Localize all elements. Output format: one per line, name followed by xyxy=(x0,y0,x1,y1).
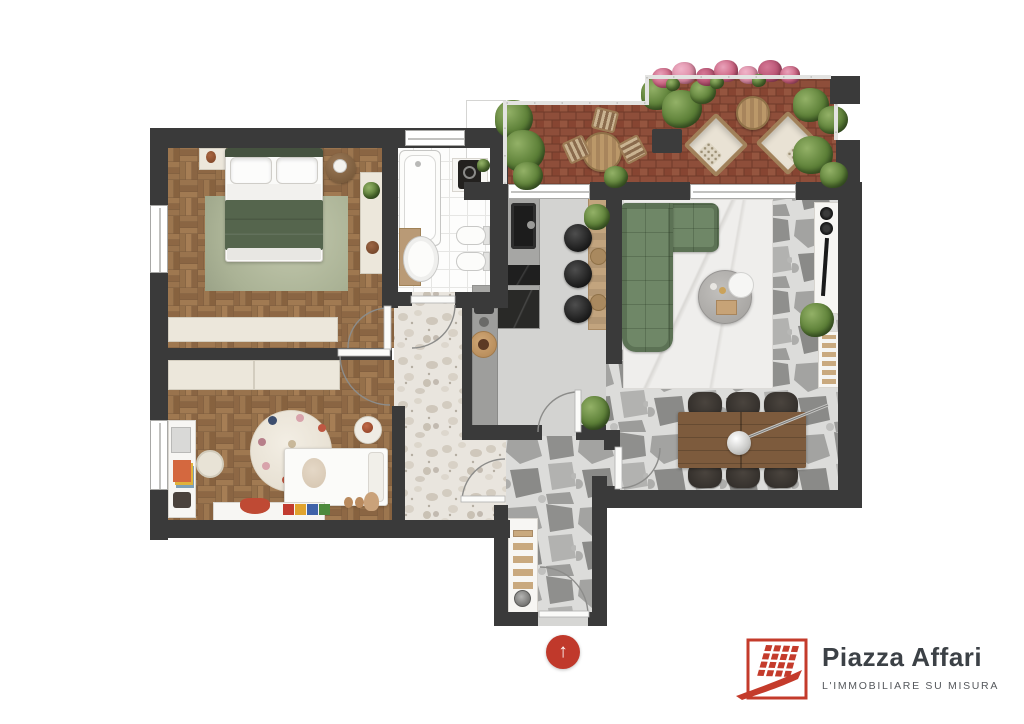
rug-dot xyxy=(296,414,304,422)
bar-stool xyxy=(564,224,592,252)
wall-bedroom-bath xyxy=(382,128,398,308)
bathtub-drain xyxy=(415,161,421,167)
logo-tagline: L'IMMOBILIARE SU MISURA xyxy=(822,680,999,692)
bed-headboard xyxy=(225,148,323,157)
floorplan-canvas: ↑ Piazza Affari L'IMMOBILIARE SU MISURA xyxy=(0,0,1024,724)
dresser-master xyxy=(168,317,338,342)
building-grid-icon xyxy=(736,636,812,708)
rocking-toy xyxy=(240,498,270,514)
wall-terrace-a xyxy=(464,182,508,200)
wall-terrace-b xyxy=(590,182,690,200)
wall-bottom-left xyxy=(150,520,510,538)
entry-threshold xyxy=(538,612,588,626)
toy-bunny xyxy=(364,492,379,511)
rug-dot xyxy=(288,440,296,448)
bath-door-threshold xyxy=(412,292,455,305)
logo-text: Piazza Affari xyxy=(822,642,999,673)
potted-plant xyxy=(363,182,380,199)
kitchen-living-passage-floor xyxy=(606,362,624,432)
bench-slats xyxy=(822,335,836,384)
wall-dining-west-a xyxy=(604,430,620,450)
wall-entry-bottom-left xyxy=(494,612,538,626)
wall-entry-left xyxy=(494,505,508,626)
window-bathroom xyxy=(405,130,465,146)
corridor-floor xyxy=(506,436,606,508)
wall-hall-kids xyxy=(392,406,405,522)
wall-kitchen-bottom-left xyxy=(462,425,542,440)
bed-duvet xyxy=(225,200,323,250)
wood-tray xyxy=(716,300,737,315)
laptop xyxy=(171,427,191,453)
wall-bath-kitchen xyxy=(490,148,508,308)
desk-item xyxy=(173,492,191,508)
mirror-ring xyxy=(463,166,476,179)
logo-block: Piazza Affari L'IMMOBILIARE SU MISURA xyxy=(736,636,1016,712)
entrance-arrow-marker: ↑ xyxy=(546,635,580,669)
bed-pillow xyxy=(276,157,318,184)
rug-dot xyxy=(258,438,266,446)
shoe-rack-slat xyxy=(513,530,533,537)
wardrobe-kids xyxy=(168,360,340,390)
master-door-threshold xyxy=(382,308,394,348)
toilet xyxy=(456,226,486,245)
window-master xyxy=(150,205,168,273)
wall-bath-bottom-left xyxy=(382,292,412,306)
bar-stool xyxy=(564,260,592,288)
window-living-terrace xyxy=(690,184,796,199)
wall-entry-right xyxy=(592,476,607,626)
bidet xyxy=(456,252,486,271)
planter-box xyxy=(652,129,682,153)
serving-board xyxy=(590,248,607,265)
sink-faucet xyxy=(527,221,535,229)
corner-sofa-vertical xyxy=(622,203,673,352)
rug-dot xyxy=(318,424,326,432)
moka-pot xyxy=(479,317,489,327)
wall-kitchen-living xyxy=(606,182,622,364)
window-kids xyxy=(150,420,168,490)
serving-board xyxy=(590,294,607,311)
flower-box xyxy=(780,66,800,84)
wall-right-outer xyxy=(838,182,862,508)
toy-slippers xyxy=(344,497,353,508)
toy-train xyxy=(283,504,294,515)
table-lamp xyxy=(333,159,347,173)
wall-entry-bottom-right xyxy=(588,612,607,626)
wall-kitchen-left xyxy=(462,303,472,439)
bed-pillow xyxy=(230,157,272,184)
book-stack xyxy=(173,460,191,482)
entry-vase xyxy=(514,590,531,607)
terrace-coffee-table xyxy=(736,96,770,130)
coffee-cup xyxy=(478,339,489,350)
rug-dot xyxy=(262,462,270,470)
toy-red xyxy=(362,422,373,433)
bed-blanket-fold xyxy=(227,248,321,260)
decor-bowl xyxy=(366,241,379,254)
bar-stool xyxy=(564,295,592,323)
wall-bedroom-divider xyxy=(168,348,392,360)
hallway-floor-lower xyxy=(394,438,510,522)
up-arrow-icon: ↑ xyxy=(558,641,568,663)
vase xyxy=(206,151,216,163)
kids-bed-print xyxy=(302,458,326,488)
coffee-table-top xyxy=(728,272,754,298)
speaker xyxy=(820,222,833,235)
washbasin xyxy=(403,236,439,282)
cup xyxy=(710,283,717,290)
rug-dot xyxy=(268,416,277,425)
wall-terrace-corner xyxy=(830,76,860,104)
pendant-lamp-sphere xyxy=(727,431,751,455)
wall-dining-bottom xyxy=(604,490,862,508)
speaker xyxy=(820,207,833,220)
kids-chair xyxy=(196,450,224,478)
